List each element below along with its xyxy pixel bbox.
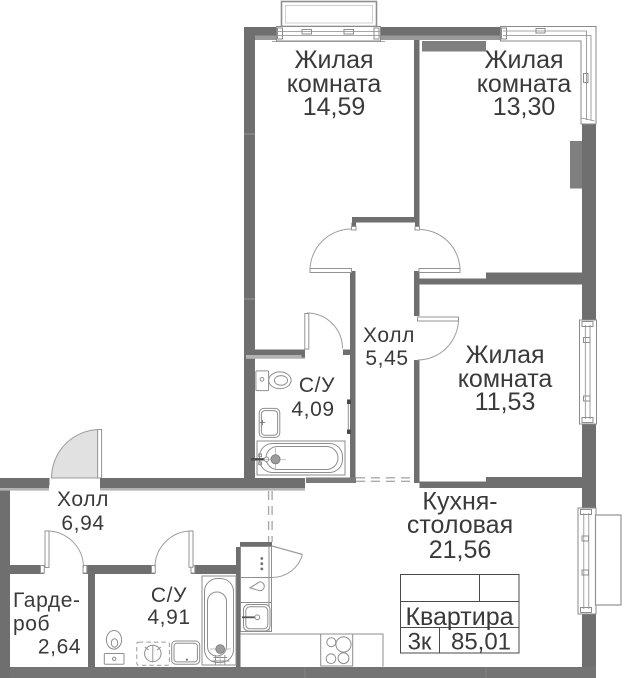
svg-text:14,59: 14,59: [303, 93, 366, 121]
svg-text:столовая: столовая: [407, 511, 513, 539]
svg-text:Холл: Холл: [363, 324, 415, 347]
svg-text:11,53: 11,53: [475, 388, 536, 416]
svg-text:85,01: 85,01: [451, 629, 511, 656]
svg-text:4,91: 4,91: [147, 606, 190, 629]
svg-text:Гарде-: Гарде-: [13, 589, 81, 612]
svg-text:3к: 3к: [408, 629, 432, 656]
svg-text:6,94: 6,94: [61, 512, 104, 535]
svg-text:13,30: 13,30: [493, 93, 556, 121]
svg-text:роб: роб: [13, 613, 50, 636]
svg-text:2,64: 2,64: [38, 636, 81, 659]
svg-text:С/У: С/У: [151, 584, 187, 607]
svg-text:5,45: 5,45: [365, 347, 408, 370]
svg-text:21,56: 21,56: [429, 536, 492, 564]
svg-text:4,09: 4,09: [291, 398, 334, 421]
svg-text:Квартира: Квартира: [405, 603, 513, 631]
svg-text:Холл: Холл: [57, 488, 109, 511]
svg-text:С/У: С/У: [299, 374, 335, 397]
